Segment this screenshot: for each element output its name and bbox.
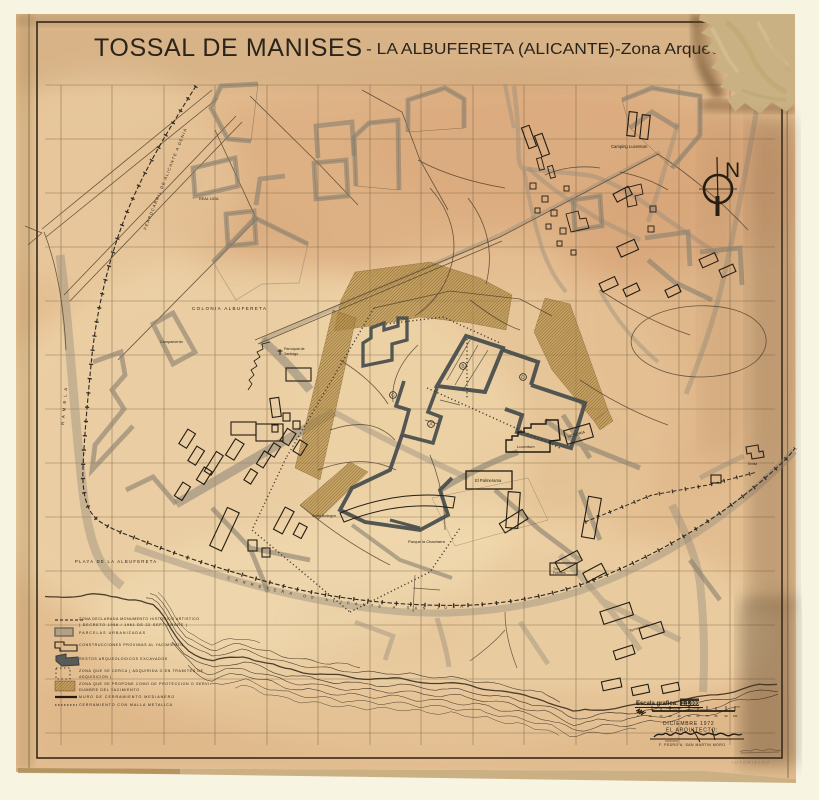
- svg-text:ZONA QUE SE CERCA ( ADQUIR: ZONA QUE SE CERCA ( ADQUIRIDA O EN TRAMI…: [79, 669, 204, 673]
- svg-text:CONSTRUCCIONES PROXIMAS AL: CONSTRUCCIONES PROXIMAS AL YACIMIENTO: [79, 643, 183, 647]
- svg-text:ZONA QUE SE PROPONE COMO: ZONA QUE SE PROPONE COMO DE PROTECCION O…: [79, 682, 212, 686]
- svg-text:Suela Bodegon: Suela Bodegon: [312, 514, 336, 518]
- svg-text:40: 40: [677, 714, 681, 718]
- svg-text:100: 100: [733, 714, 738, 718]
- svg-text:Campamento: Campamento: [160, 340, 183, 344]
- svg-text:90: 90: [724, 714, 728, 718]
- svg-text:Lucentum: Lucentum: [517, 444, 535, 449]
- svg-text:1:1.000: 1:1.000: [682, 701, 700, 707]
- svg-text:REAL LIGA: REAL LIGA: [199, 197, 219, 201]
- svg-text:50: 50: [687, 714, 691, 718]
- svg-text:TOSSAL DE MANISES: TOSSAL DE MANISES: [94, 34, 362, 62]
- svg-text:70: 70: [705, 714, 709, 718]
- svg-text:PLAYA DE LA ALBUFERETA: PLAYA DE LA ALBUFERETA: [75, 559, 157, 564]
- svg-text:ADQUISICION ): ADQUISICION ): [79, 675, 111, 679]
- svg-text:ZONA DECLARADA MONUMENTO HISTO: ZONA DECLARADA MONUMENTO HISTORICO ARTIS…: [79, 617, 199, 621]
- svg-text:( DECRETO 1956 / 1961 DE 22: ( DECRETO 1956 / 1961 DE 22 SEPTIEMBRE ): [79, 623, 187, 627]
- svg-text:Fuentes: Fuentes: [553, 571, 566, 575]
- svg-text:80: 80: [714, 714, 718, 718]
- svg-text:PARCELAS URBANIZADAS: PARCELAS URBANIZADAS: [79, 631, 146, 635]
- svg-text:Camping Lucentum: Camping Lucentum: [611, 144, 648, 149]
- svg-text:B: B: [461, 364, 464, 370]
- svg-text:DICIEMBRE 1972: DICIEMBRE 1972: [663, 721, 715, 727]
- svg-text:10: 10: [648, 714, 652, 718]
- svg-text:El Palmerama: El Palmerama: [475, 478, 502, 483]
- svg-text:Santiago: Santiago: [284, 352, 298, 356]
- svg-text:Parque la Chacharra: Parque la Chacharra: [408, 539, 446, 544]
- svg-text:RESTOS ARQUEOLOGICOS EXCAVAD: RESTOS ARQUEOLOGICOS EXCAVADOS: [79, 657, 168, 661]
- svg-text:MURO DE CERRAMIENTO MEDIANE: MURO DE CERRAMIENTO MEDIANERO: [79, 695, 174, 699]
- svg-text:D: D: [521, 375, 525, 381]
- svg-text:60: 60: [696, 714, 700, 718]
- svg-text:CERRAMIENTO CON MALLA METAL: CERRAMIENTO CON MALLA METALICA: [79, 703, 173, 707]
- svg-text:COLONIA ALBUFERETA: COLONIA ALBUFERETA: [192, 306, 267, 311]
- svg-text:20: 20: [659, 714, 663, 718]
- svg-text:Parroquia de: Parroquia de: [284, 347, 305, 351]
- svg-text:Escala grafica:: Escala grafica:: [636, 701, 678, 707]
- svg-text:DUMBRE DEL YACIMIENTO: DUMBRE DEL YACIMIENTO: [79, 688, 139, 692]
- svg-text:C: C: [391, 393, 395, 399]
- svg-text:30: 30: [668, 714, 672, 718]
- svg-text:- LA ALBUFERETA (ALICANTE)-Zon: - LA ALBUFERETA (ALICANTE)-Zona Arqueolo…: [366, 41, 744, 58]
- svg-text:F. PEDRO A. SAN MARTIN: F. PEDRO A. SAN MARTIN MORO: [659, 743, 725, 747]
